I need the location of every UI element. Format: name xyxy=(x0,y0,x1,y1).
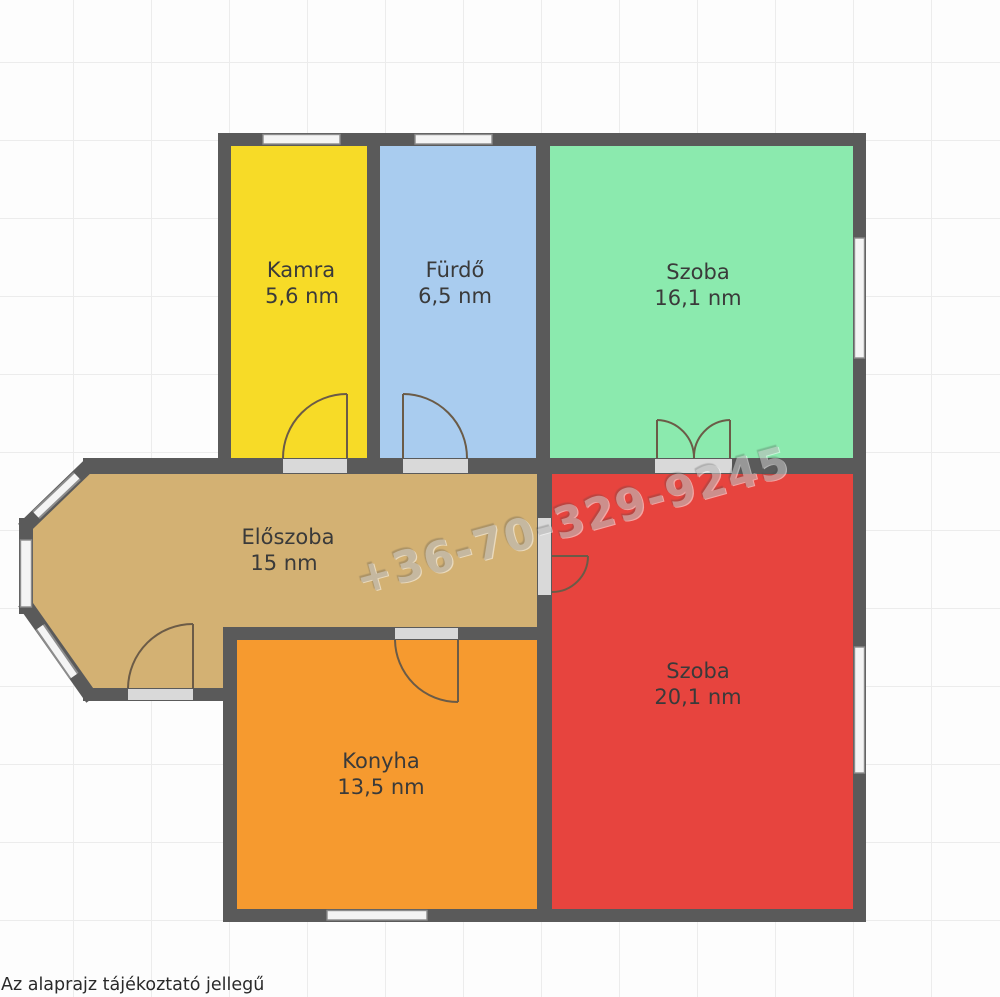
wall-konyha-left xyxy=(223,627,237,922)
label-kamra-area: 5,6 nm xyxy=(265,284,339,308)
label-eloszoba-name: Előszoba xyxy=(242,525,335,549)
label-konyha-area: 13,5 nm xyxy=(337,775,424,799)
window-bay-left xyxy=(21,540,32,607)
label-szoba-2-name: Szoba xyxy=(666,659,729,683)
floor-plan: Kamra 5,6 nm Fürdő 6,5 nm Szoba 16,1 nm … xyxy=(0,0,1000,997)
threshold-konyha xyxy=(395,628,458,639)
disclaimer-text: Az alaprajz tájékoztató jellegű xyxy=(1,975,264,995)
label-szoba-2-area: 20,1 nm xyxy=(654,685,741,709)
wall-furdo-szoba xyxy=(536,146,550,458)
label-kamra-name: Kamra xyxy=(267,258,335,282)
window-furdo xyxy=(415,135,492,145)
threshold-furdo xyxy=(403,459,468,473)
wall-kamra-furdo xyxy=(367,146,380,458)
wall-konyha-top xyxy=(223,627,537,640)
window-kamra xyxy=(263,135,340,145)
threshold-eloszoba xyxy=(128,689,193,700)
window-szoba-2 xyxy=(855,647,865,773)
window-konyha xyxy=(327,911,427,921)
label-szoba-1-name: Szoba xyxy=(666,260,729,284)
label-szoba-1-area: 16,1 nm xyxy=(654,286,741,310)
window-szoba-1 xyxy=(855,238,865,358)
label-furdo-name: Fürdő xyxy=(426,258,485,282)
threshold-kamra xyxy=(283,459,347,473)
wall-left-upper xyxy=(218,146,231,474)
label-eloszoba-area: 15 nm xyxy=(250,551,317,575)
label-furdo-area: 6,5 nm xyxy=(418,284,492,308)
label-konyha-name: Konyha xyxy=(342,749,420,773)
